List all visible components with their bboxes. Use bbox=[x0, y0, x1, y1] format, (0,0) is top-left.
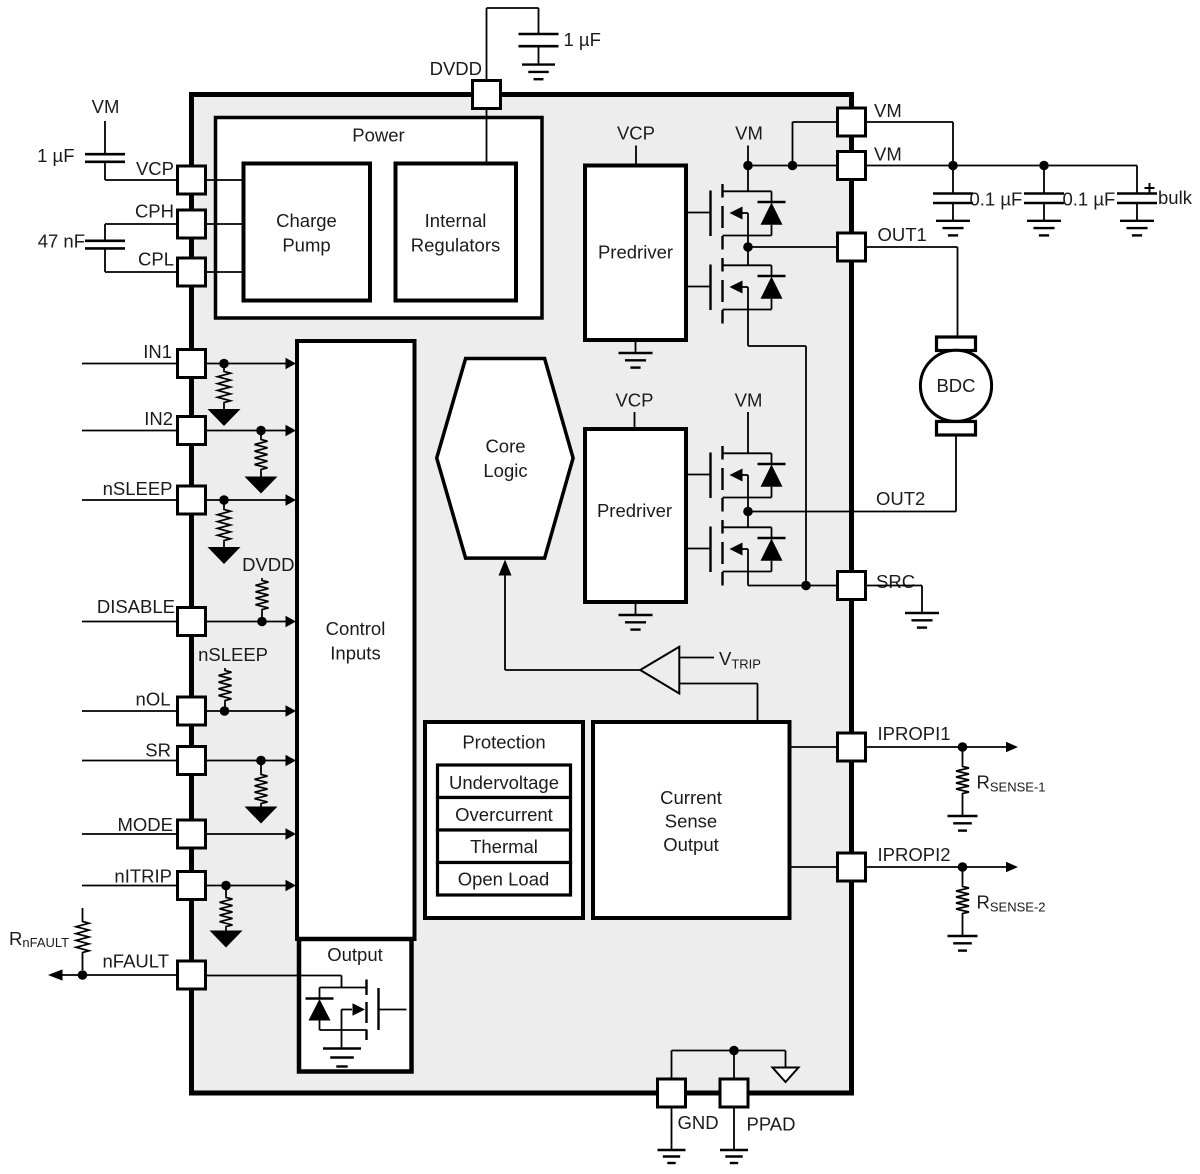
svg-text:Regulators: Regulators bbox=[411, 235, 500, 256]
svg-text:MODE: MODE bbox=[118, 814, 174, 835]
svg-text:Internal: Internal bbox=[425, 210, 487, 231]
svg-text:nSLEEP: nSLEEP bbox=[198, 644, 268, 665]
svg-text:47 nF: 47 nF bbox=[38, 231, 85, 252]
svg-text:Core: Core bbox=[485, 436, 525, 457]
svg-text:VCP: VCP bbox=[617, 123, 655, 144]
svg-text:OUT1: OUT1 bbox=[878, 224, 927, 245]
svg-text:PPAD: PPAD bbox=[747, 1114, 796, 1135]
svg-text:Power: Power bbox=[352, 125, 404, 146]
svg-text:RnFAULT: RnFAULT bbox=[9, 928, 69, 950]
svg-text:VM: VM bbox=[874, 100, 902, 121]
svg-text:DVDD: DVDD bbox=[430, 58, 482, 79]
svg-text:BDC: BDC bbox=[936, 375, 975, 396]
svg-text:Charge: Charge bbox=[276, 210, 337, 231]
svg-text:Overcurrent: Overcurrent bbox=[455, 804, 553, 825]
svg-text:DISABLE: DISABLE bbox=[97, 596, 175, 617]
svg-text:Output: Output bbox=[327, 944, 383, 965]
svg-text:IN1: IN1 bbox=[143, 341, 172, 362]
svg-text:nITRIP: nITRIP bbox=[114, 866, 172, 887]
svg-text:Thermal: Thermal bbox=[470, 836, 538, 857]
svg-text:Predriver: Predriver bbox=[597, 500, 672, 521]
svg-text:Logic: Logic bbox=[483, 460, 527, 481]
svg-text:0.1 µF: 0.1 µF bbox=[1063, 189, 1116, 210]
svg-text:VCP: VCP bbox=[615, 390, 653, 411]
svg-text:Open Load: Open Load bbox=[458, 869, 550, 890]
svg-text:1 µF: 1 µF bbox=[564, 29, 601, 50]
svg-text:VCP: VCP bbox=[136, 158, 174, 179]
svg-text:Sense: Sense bbox=[665, 811, 717, 832]
svg-text:RSENSE-1: RSENSE-1 bbox=[977, 772, 1046, 795]
svg-text:bulk: bulk bbox=[1158, 187, 1193, 208]
svg-text:IPROPI1: IPROPI1 bbox=[878, 723, 951, 744]
svg-text:nFAULT: nFAULT bbox=[103, 951, 169, 972]
svg-text:IPROPI2: IPROPI2 bbox=[878, 844, 951, 865]
svg-text:CPL: CPL bbox=[138, 249, 174, 270]
svg-text:VM: VM bbox=[735, 390, 763, 411]
svg-text:VM: VM bbox=[874, 144, 902, 165]
svg-text:SRC: SRC bbox=[876, 571, 915, 592]
svg-text:VM: VM bbox=[92, 96, 120, 117]
svg-text:nOL: nOL bbox=[136, 689, 171, 710]
svg-text:IN2: IN2 bbox=[144, 408, 173, 429]
svg-text:OUT2: OUT2 bbox=[876, 488, 925, 509]
svg-text:Control: Control bbox=[326, 618, 386, 639]
svg-text:Inputs: Inputs bbox=[330, 643, 380, 664]
svg-text:Protection: Protection bbox=[462, 732, 545, 753]
svg-text:VM: VM bbox=[735, 123, 763, 144]
svg-text:GND: GND bbox=[678, 1112, 719, 1133]
svg-text:Current: Current bbox=[660, 787, 722, 808]
svg-text:Undervoltage: Undervoltage bbox=[449, 772, 559, 793]
svg-text:nSLEEP: nSLEEP bbox=[103, 478, 173, 499]
svg-text:RSENSE-2: RSENSE-2 bbox=[977, 892, 1046, 915]
svg-text:Pump: Pump bbox=[282, 235, 330, 256]
svg-text:Predriver: Predriver bbox=[598, 242, 673, 263]
svg-text:Output: Output bbox=[663, 834, 719, 855]
svg-text:SR: SR bbox=[145, 740, 171, 761]
svg-text:0.1 µF: 0.1 µF bbox=[970, 189, 1023, 210]
svg-text:CPH: CPH bbox=[135, 201, 174, 222]
svg-text:DVDD: DVDD bbox=[242, 554, 294, 575]
svg-text:1 µF: 1 µF bbox=[37, 145, 74, 166]
